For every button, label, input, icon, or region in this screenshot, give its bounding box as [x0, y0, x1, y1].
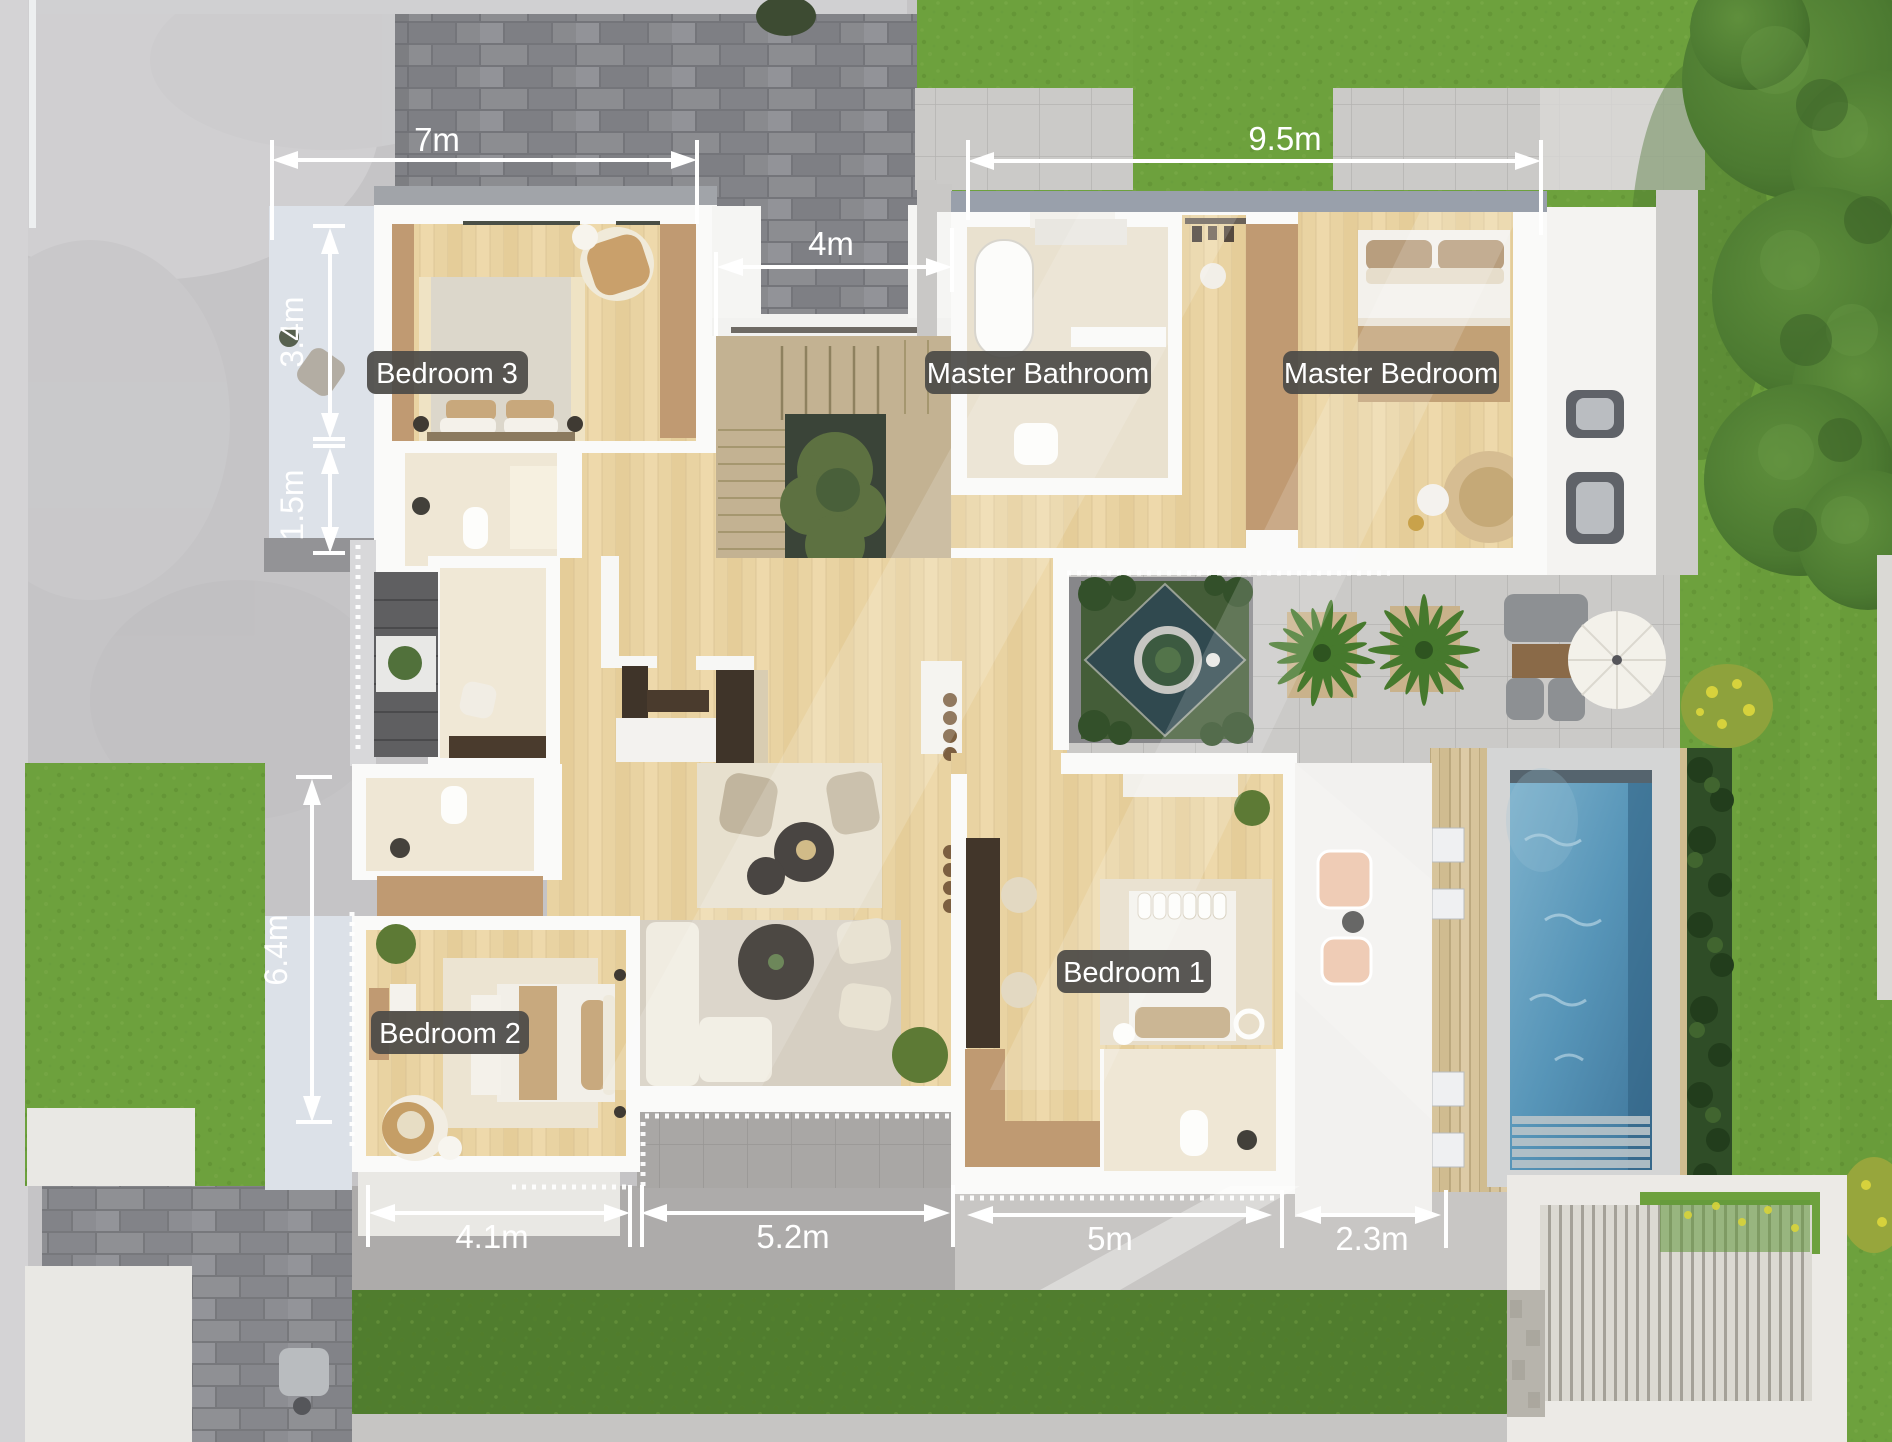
svg-text:6.4m: 6.4m: [258, 914, 294, 985]
svg-text:Bedroom 1: Bedroom 1: [1063, 957, 1205, 989]
svg-text:4m: 4m: [808, 225, 854, 262]
svg-text:3.4m: 3.4m: [274, 296, 310, 367]
svg-text:Bedroom 3: Bedroom 3: [376, 358, 518, 390]
svg-text:Master Bedroom: Master Bedroom: [1284, 358, 1498, 390]
svg-text:Bedroom 2: Bedroom 2: [379, 1018, 521, 1050]
svg-text:9.5m: 9.5m: [1248, 120, 1321, 157]
svg-text:Master Bathroom: Master Bathroom: [927, 358, 1149, 390]
svg-text:5.2m: 5.2m: [756, 1218, 829, 1255]
svg-text:7m: 7m: [414, 121, 460, 158]
svg-text:4.1m: 4.1m: [455, 1218, 528, 1255]
svg-text:5m: 5m: [1087, 1220, 1133, 1257]
svg-text:2.3m: 2.3m: [1335, 1220, 1408, 1257]
svg-text:1.5m: 1.5m: [274, 469, 310, 540]
